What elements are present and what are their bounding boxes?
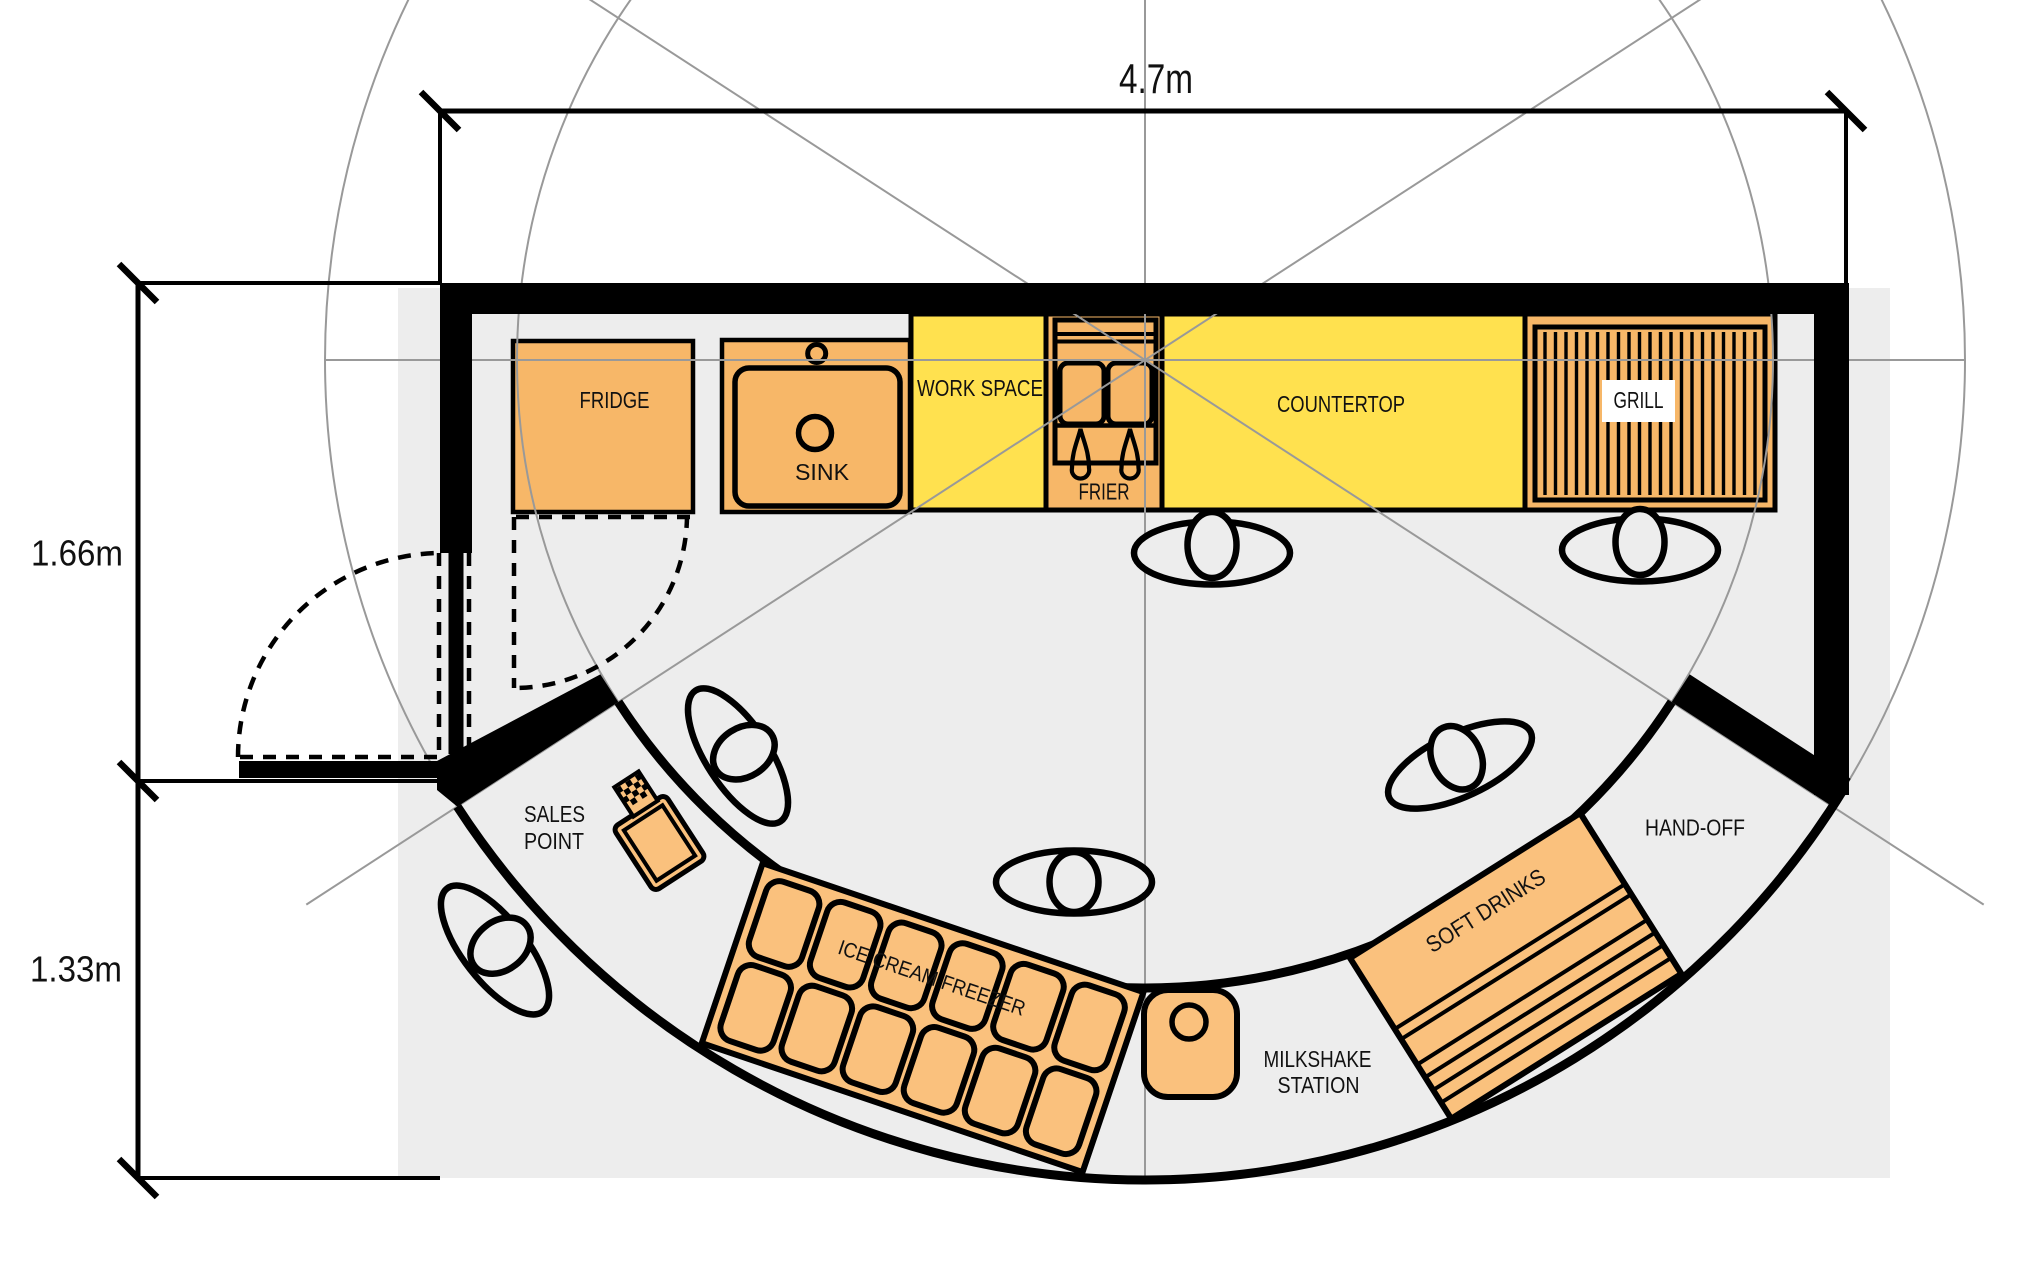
svg-text:4.7m: 4.7m xyxy=(1119,55,1193,102)
svg-text:FRIDGE: FRIDGE xyxy=(580,387,650,413)
svg-text:COUNTERTOP: COUNTERTOP xyxy=(1277,391,1405,417)
svg-text:1.66m: 1.66m xyxy=(31,533,123,574)
svg-text:POINT: POINT xyxy=(524,828,584,854)
svg-text:HAND-OFF: HAND-OFF xyxy=(1645,815,1745,841)
svg-text:WORK SPACE: WORK SPACE xyxy=(917,375,1043,401)
svg-text:STATION: STATION xyxy=(1278,1072,1360,1098)
svg-text:SINK: SINK xyxy=(795,459,850,485)
svg-text:FRIER: FRIER xyxy=(1079,479,1130,505)
svg-text:GRILL: GRILL xyxy=(1614,387,1664,413)
svg-text:MILKSHAKE: MILKSHAKE xyxy=(1264,1046,1372,1072)
svg-text:SALES: SALES xyxy=(524,801,585,827)
svg-text:1.33m: 1.33m xyxy=(30,949,122,990)
